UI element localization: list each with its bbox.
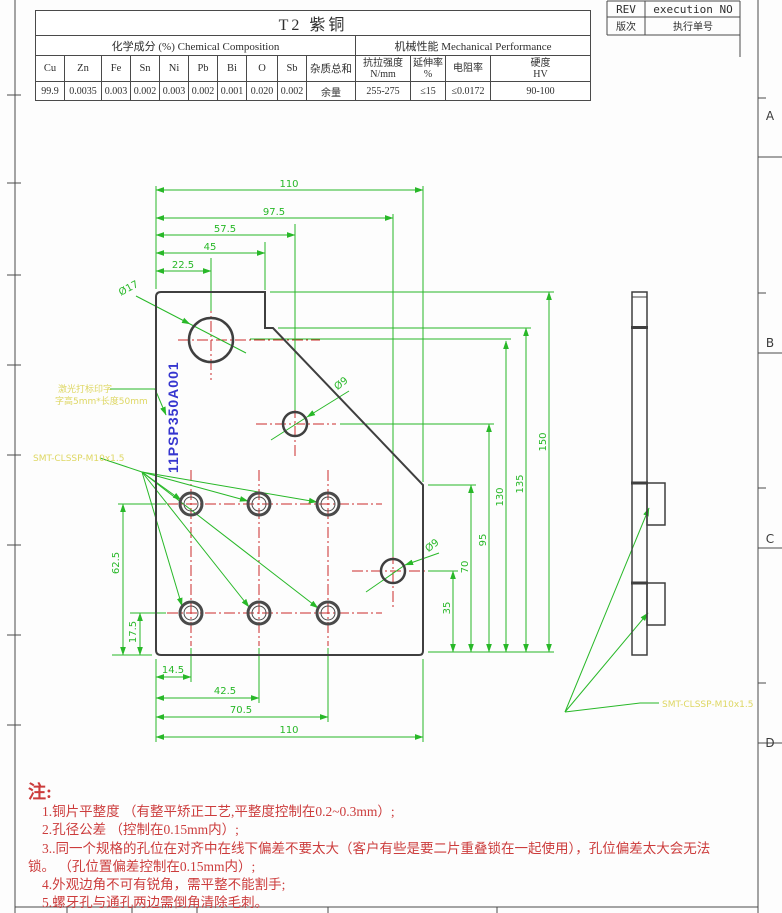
execution-no-header: execution NO: [653, 3, 732, 16]
notes-title: 注:: [28, 781, 718, 803]
section-header-row: 化学成分 (%) Chemical Composition 机械性能 Mecha…: [36, 36, 591, 56]
plate-front-view: [156, 292, 423, 655]
val-tensile-strength: 255-275: [356, 82, 411, 101]
col-resistivity: 电阻率: [446, 56, 491, 82]
dim-right-95: 95: [478, 534, 489, 547]
dim-bottom-110: 110: [279, 725, 298, 736]
col-sb: Sb: [278, 56, 307, 82]
thread-spec-note: SMT-CLSSP-M10x1.5: [33, 454, 124, 464]
col-ni: Ni: [160, 56, 189, 82]
zone-letter-d: D: [765, 736, 774, 750]
dim-right-150: 150: [538, 432, 549, 451]
dim-right-35: 35: [442, 602, 453, 615]
col-tensile-strength: 抗拉强度 N/mm: [356, 56, 411, 82]
plate-side-view: [631, 292, 665, 655]
mechanical-performance-header: 机械性能 Mechanical Performance: [356, 36, 591, 56]
val-zn: 0.0035: [65, 82, 102, 101]
note-item-4: 4.外观边角不可有锐角，需平整不能割手;: [28, 876, 718, 894]
col-elongation: 延伸率 %: [411, 56, 446, 82]
dim-top-97-5: 97.5: [263, 207, 285, 218]
val-fe: 0.003: [102, 82, 131, 101]
value-row: 99.9 0.0035 0.003 0.002 0.003 0.002 0.00…: [36, 82, 591, 101]
dim-top-57-5: 57.5: [214, 224, 236, 235]
dim-top-110: 110: [279, 179, 298, 190]
rev-value: 版次: [616, 20, 636, 33]
val-sb: 0.002: [278, 82, 307, 101]
material-title-row: T2 紫铜: [36, 11, 591, 36]
hole-label-d9-mid: Ø9: [332, 375, 351, 393]
val-ni: 0.003: [160, 82, 189, 101]
val-bi: 0.001: [218, 82, 247, 101]
hole-label-d17: Ø17: [117, 278, 141, 298]
val-impurity-total: 余量: [307, 82, 356, 101]
val-cu: 99.9: [36, 82, 65, 101]
dim-top-45: 45: [204, 242, 217, 253]
hole-label-d9-low: Ø9: [423, 537, 442, 555]
val-sn: 0.002: [131, 82, 160, 101]
col-sn: Sn: [131, 56, 160, 82]
laser-mark-note-line2: 字高5mm*长度50mm: [55, 395, 148, 407]
part-number-text: 11PSP350A001: [165, 361, 181, 473]
val-pb: 0.002: [189, 82, 218, 101]
execution-no-value: 执行单号: [673, 20, 713, 33]
dim-bottom-42-5: 42.5: [214, 686, 236, 697]
note-item-3: 3..同一个规格的孔位在对齐中在线下偏差不要太大（客户有些是要二片重叠锁在一起使…: [28, 840, 718, 877]
dim-right-130: 130: [495, 487, 506, 506]
zone-letter-a: A: [766, 109, 775, 123]
rev-header: REV: [616, 3, 636, 16]
material-title: T2 紫铜: [36, 11, 591, 36]
cad-drawing-canvas: A B C D REV execution NO 版次 执行单号: [0, 0, 782, 913]
note-item-5: 5.螺牙孔与通孔两边需倒角清除毛刺。: [28, 894, 718, 912]
column-header-row: Cu Zn Fe Sn Ni Pb Bi O Sb 杂质总和 抗拉强度 N/mm…: [36, 56, 591, 82]
col-pb: Pb: [189, 56, 218, 82]
dim-left-62-5: 62.5: [111, 552, 122, 574]
dim-right-70: 70: [460, 561, 471, 574]
val-hardness: 90-100: [491, 82, 591, 101]
zone-letter-c: C: [766, 532, 774, 546]
val-elongation: ≤15: [411, 82, 446, 101]
material-table: T2 紫铜 化学成分 (%) Chemical Composition 机械性能…: [35, 10, 591, 101]
dim-top-22-5: 22.5: [172, 260, 194, 271]
note-item-2: 2.孔径公差 （控制在0.15mm内）;: [28, 821, 718, 839]
dim-right-135: 135: [515, 474, 526, 493]
drawing-sheet: A B C D REV execution NO 版次 执行单号: [0, 0, 782, 913]
plate-outline: [156, 292, 423, 655]
val-resistivity: ≤0.0172: [446, 82, 491, 101]
dim-bottom-14-5: 14.5: [162, 665, 184, 676]
col-fe: Fe: [102, 56, 131, 82]
col-o: O: [247, 56, 278, 82]
zone-letter-b: B: [766, 336, 774, 350]
side-boss-lower: [647, 583, 665, 625]
col-cu: Cu: [36, 56, 65, 82]
col-zn: Zn: [65, 56, 102, 82]
side-boss-upper: [647, 483, 665, 525]
val-o: 0.020: [247, 82, 278, 101]
laser-mark-note-line1: 激光打标印字: [58, 383, 112, 395]
hole-centerlines: [167, 302, 452, 646]
col-hardness: 硬度 HV: [491, 56, 591, 82]
note-item-1: 1.铜片平整度 （有整平矫正工艺,平整度控制在0.2~0.3mm）;: [28, 803, 718, 821]
dim-left-17-5: 17.5: [128, 621, 139, 643]
col-bi: Bi: [218, 56, 247, 82]
col-impurity-total: 杂质总和: [307, 56, 356, 82]
dim-bottom-70-5: 70.5: [230, 705, 252, 716]
thread-spec-note-side: SMT-CLSSP-M10x1.5: [662, 700, 753, 710]
chemical-composition-header: 化学成分 (%) Chemical Composition: [36, 36, 356, 56]
notes-section: 注: 1.铜片平整度 （有整平矫正工艺,平整度控制在0.2~0.3mm）; 2.…: [28, 781, 718, 913]
